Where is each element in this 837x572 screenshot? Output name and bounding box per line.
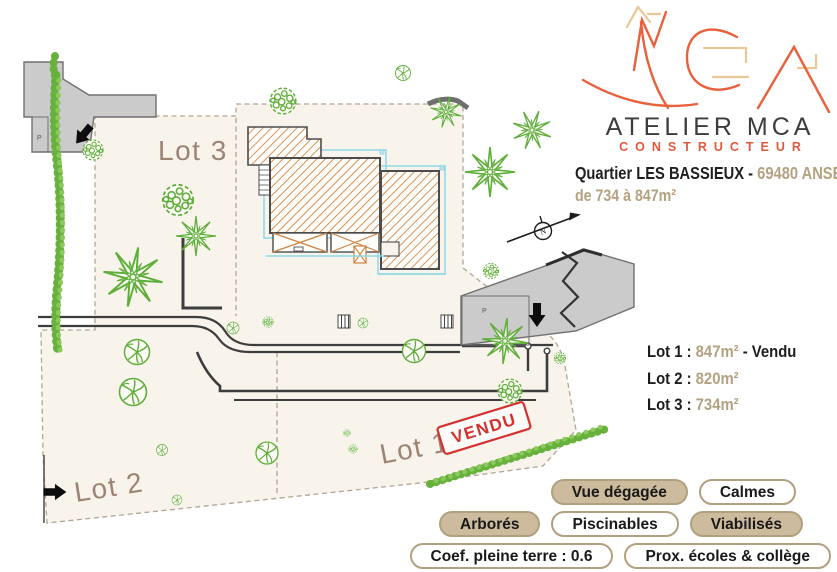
mca-logo-icon: [583, 7, 829, 112]
badge-calmes: Calmes: [699, 479, 796, 505]
district-line: Quartier LES BASSIEUX - 69480 ANSE: [575, 163, 837, 184]
district-name: Quartier LES BASSIEUX -: [575, 163, 757, 183]
district-city: 69480 ANSE: [757, 163, 837, 183]
north-compass-icon: N: [507, 213, 581, 243]
lots-summary: Lot 1 : 847m² - Vendu Lot 2 : 820m² Lot …: [647, 339, 796, 419]
badge-viabilises: Viabilisés: [690, 511, 803, 537]
badge-row-2: Arborés Piscinables Viabilisés: [439, 511, 803, 537]
lot-2-line: Lot 2 : 820m²: [647, 366, 796, 393]
badge-row-3: Coef. pleine terre : 0.6 Prox. écoles & …: [410, 543, 832, 569]
size-range: de 734 à 847m²: [575, 187, 837, 206]
brand-subtitle: CONSTRUCTEUR: [588, 140, 832, 154]
badge-arbores: Arborés: [439, 511, 540, 537]
badge-piscinables: Piscinables: [551, 511, 678, 537]
brochure-page: P P: [0, 0, 837, 572]
badge-row-1: Vue dégagée Calmes: [551, 479, 796, 505]
badge-coef-pleine-terre: Coef. pleine terre : 0.6: [410, 543, 614, 569]
lot-3-label: Lot 3: [158, 135, 228, 166]
lot-3-line: Lot 3 : 734m²: [647, 392, 796, 419]
badge-vue-degagee: Vue dégagée: [551, 479, 688, 505]
access-road-right: P: [461, 249, 634, 345]
parking-label-2: P: [482, 308, 487, 315]
lot-1-line: Lot 1 : 847m² - Vendu: [647, 339, 796, 366]
brand-name: ATELIER MCA: [588, 113, 832, 142]
badge-prox-ecoles: Prox. écoles & collège: [624, 543, 831, 569]
parking-label: P: [37, 135, 42, 142]
